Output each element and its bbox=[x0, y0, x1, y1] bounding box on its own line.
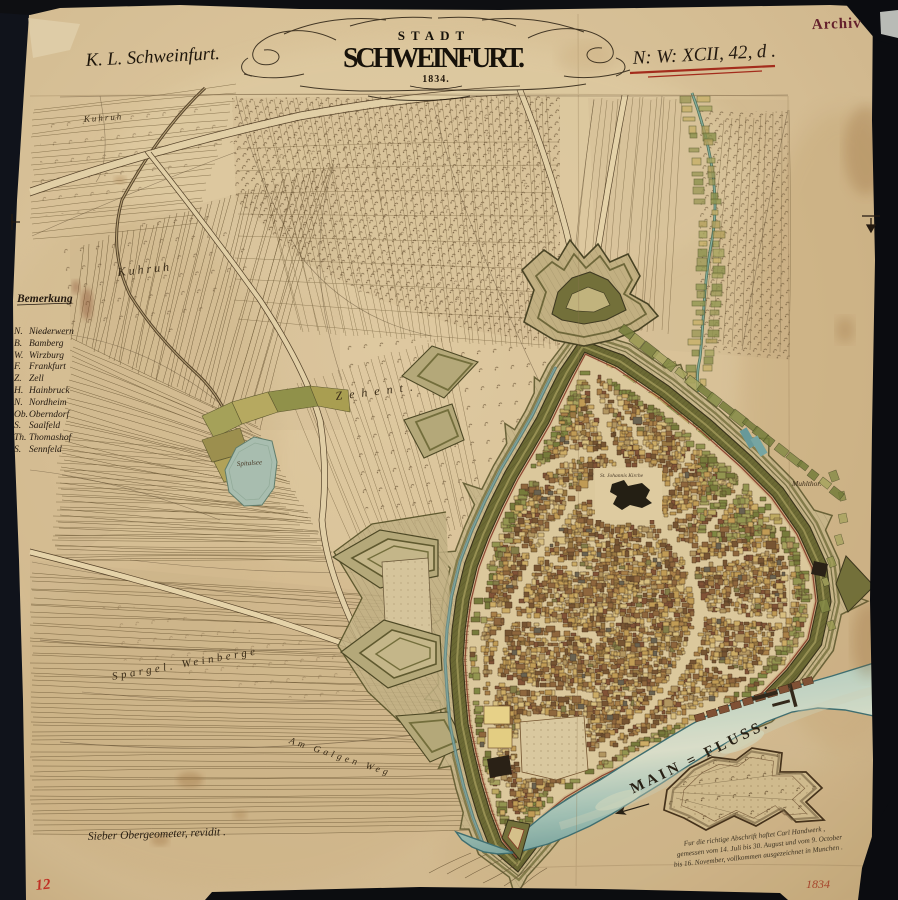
svg-text:SCHWEINFURT.: SCHWEINFURT. bbox=[343, 43, 525, 74]
svg-text:N.: N. bbox=[13, 398, 23, 408]
svg-text:STADT: STADT bbox=[398, 28, 470, 43]
svg-text:1834: 1834 bbox=[806, 877, 830, 891]
svg-text:Hainbruck: Hainbruck bbox=[28, 386, 70, 396]
svg-text:S.: S. bbox=[14, 445, 21, 455]
svg-text:W.: W. bbox=[14, 351, 23, 361]
svg-text:Th.: Th. bbox=[14, 433, 26, 443]
svg-text:H.: H. bbox=[13, 386, 23, 396]
svg-text:Frankfurt: Frankfurt bbox=[28, 361, 66, 372]
svg-text:Zell: Zell bbox=[29, 374, 44, 384]
svg-text:F.: F. bbox=[13, 362, 21, 372]
svg-text:Archiv: Archiv bbox=[812, 15, 862, 33]
svg-text:Ob.: Ob. bbox=[14, 410, 28, 420]
svg-text:Bamberg: Bamberg bbox=[29, 339, 64, 349]
svg-text:Niederwern: Niederwern bbox=[28, 327, 74, 337]
svg-text:Thomashof: Thomashof bbox=[29, 432, 73, 443]
svg-text:Nordheim: Nordheim bbox=[28, 398, 67, 408]
svg-text:12: 12 bbox=[35, 876, 52, 894]
svg-text:N.: N. bbox=[13, 327, 23, 337]
svg-text:Z.: Z. bbox=[14, 374, 22, 384]
svg-text:1834.: 1834. bbox=[422, 74, 450, 85]
svg-text:Muhlthor.: Muhlthor. bbox=[791, 479, 822, 488]
svg-text:Sennfeld: Sennfeld bbox=[29, 444, 62, 455]
svg-text:Oberndorf: Oberndorf bbox=[29, 409, 70, 420]
svg-text:Saalfeld: Saalfeld bbox=[29, 420, 60, 431]
svg-text:Wirzburg: Wirzburg bbox=[29, 351, 64, 361]
svg-text:S.: S. bbox=[14, 421, 21, 431]
svg-text:B.: B. bbox=[14, 339, 22, 349]
